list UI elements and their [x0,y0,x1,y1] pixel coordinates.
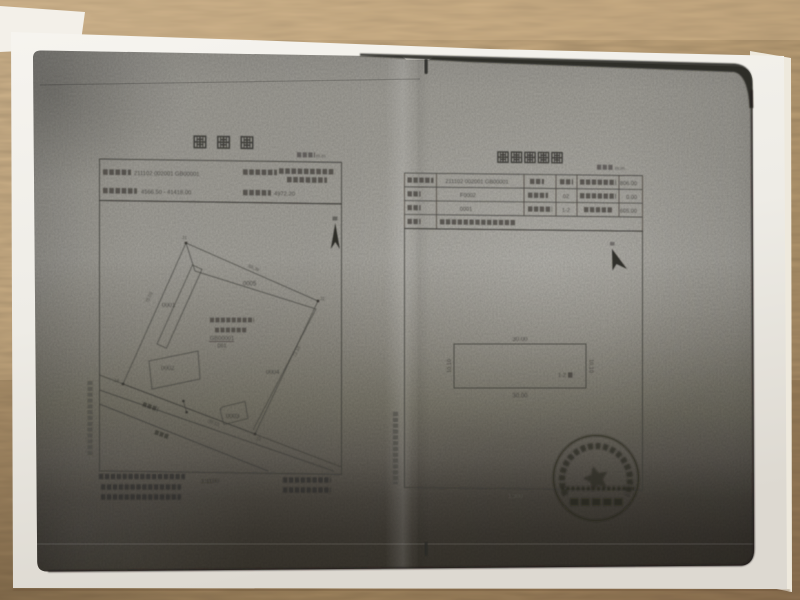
svg-text:806.00: 806.00 [620,181,637,187]
svg-text:4972.20: 4972.20 [274,191,295,197]
svg-text:F0002: F0002 [460,193,476,199]
svg-text:J3: J3 [256,436,261,441]
svg-text:0.00: 0.00 [626,195,637,201]
svg-text:1-2: 1-2 [562,208,570,214]
svg-text:1:300: 1:300 [508,494,524,500]
svg-text:J2: J2 [320,296,325,301]
svg-text:30.00: 30.00 [512,337,528,343]
svg-text:605.00: 605.00 [620,209,637,215]
svg-text:0004: 0004 [266,370,280,376]
svg-text:4566.50 - 41418.00: 4566.50 - 41418.00 [141,190,191,197]
svg-text:0001: 0001 [460,207,472,213]
svg-text:1-2: 1-2 [558,373,566,379]
svg-text:0005: 0005 [243,282,257,288]
svg-text:10.10: 10.10 [588,359,594,373]
svg-text:211102 002001 GB00001: 211102 002001 GB00001 [134,171,200,178]
svg-text:m.m: m.m [615,166,625,172]
svg-text:211102 002001 GB00001: 211102 002001 GB00001 [445,179,508,186]
svg-text:061: 061 [217,344,226,350]
svg-text:10.10: 10.10 [447,359,453,373]
svg-text:02: 02 [563,194,569,200]
svg-text:m.m: m.m [316,154,326,160]
svg-text:0003: 0003 [226,414,240,420]
svg-text:0001: 0001 [162,303,176,309]
svg-text:30.00: 30.00 [512,394,528,400]
svg-text:GB00001: GB00001 [210,336,235,342]
svg-text:1:1100: 1:1100 [201,479,220,485]
svg-text:0002: 0002 [161,366,175,372]
svg-text:J1: J1 [182,235,187,240]
